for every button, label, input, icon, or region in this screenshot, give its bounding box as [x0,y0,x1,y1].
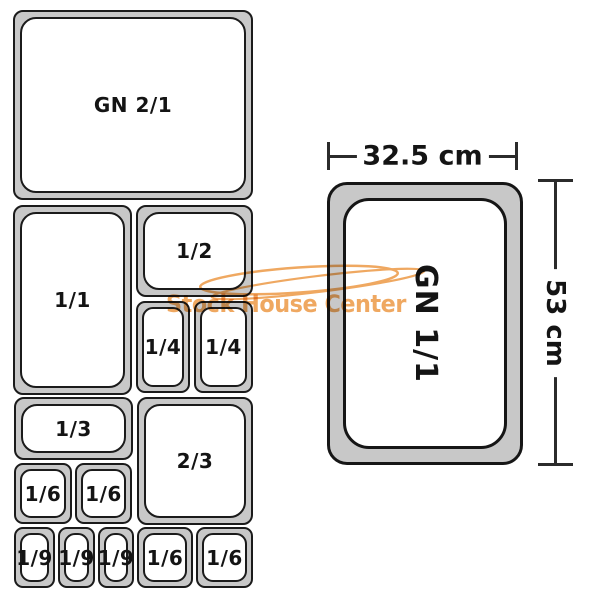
pan-box-inner: 1/9 [104,533,128,582]
pan-size-label: 1/6 [85,482,122,506]
width-dimension-label: 32.5 cm [356,141,488,172]
pan-box-inner: 1/4 [142,307,184,387]
gn-1-1-label: GN 1/1 [407,264,442,383]
pan-box: 1/9 [14,527,55,588]
height-dimension-label: 53 cm [540,269,570,377]
gn-1-1-pan-inner: GN 1/1 [343,198,507,449]
pan-box-inner: 1/4 [200,307,247,387]
pan-box-inner: 1/6 [143,533,187,582]
pan-box-inner: 1/6 [202,533,247,582]
pan-box: GN 2/1 [13,10,253,200]
pan-size-label: GN 2/1 [94,93,172,117]
pan-box: 1/6 [137,527,193,588]
pan-box-inner: 1/2 [143,212,246,290]
height-dimension: 53 cm [538,179,573,466]
pan-size-label: 1/6 [147,546,184,570]
pan-size-label: 1/9 [98,546,135,570]
pan-size-label: 1/6 [25,482,62,506]
pan-box: 1/6 [196,527,253,588]
width-dimension: 32.5 cm [327,142,518,170]
pan-size-label: 1/9 [58,546,95,570]
pan-box: 1/4 [136,301,190,393]
pan-size-label: 1/1 [54,288,91,312]
pan-size-label: 1/6 [206,546,243,570]
dimension-tick-right [515,142,518,170]
pan-box: 2/3 [137,397,253,525]
pan-box: 1/9 [58,527,95,588]
pan-box-inner: 1/1 [20,212,125,388]
pan-box-inner: 1/9 [20,533,49,582]
gn-1-1-pan: GN 1/1 [327,182,523,465]
pan-box-inner: GN 2/1 [20,17,246,193]
pan-size-label: 1/3 [55,417,92,441]
pan-box-inner: 2/3 [144,404,246,518]
gastronorm-size-diagram: GN 2/1 1/1 1/2 1/4 1/4 1/ [0,0,600,600]
pan-box: 1/1 [13,205,132,395]
pan-box-inner: 1/6 [20,469,66,518]
pan-box-inner: 1/9 [64,533,89,582]
pan-size-label: 2/3 [177,449,214,473]
pan-box-inner: 1/6 [81,469,126,518]
pan-size-label: 1/4 [205,335,242,359]
pan-box: 1/2 [136,205,253,297]
pan-box: 1/9 [98,527,134,588]
pan-box: 1/4 [194,301,253,393]
dimension-tick-left [327,142,330,170]
pan-box: 1/3 [14,397,133,460]
pan-box-inner: 1/3 [21,404,126,453]
pan-size-label: 1/2 [176,239,213,263]
pan-box: 1/6 [14,463,72,524]
pan-size-label: 1/4 [145,335,182,359]
pan-box: 1/6 [75,463,132,524]
pan-size-label: 1/9 [16,546,53,570]
